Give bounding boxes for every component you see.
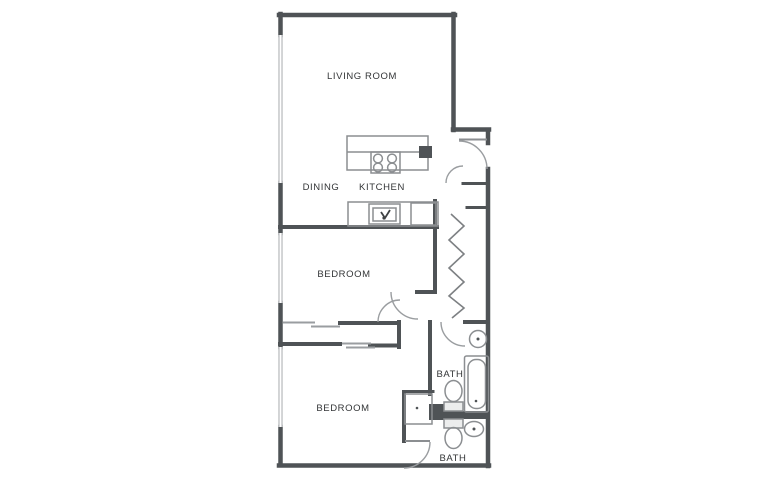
island-end-post xyxy=(419,146,432,158)
toilet-upper xyxy=(444,381,463,412)
bedroom-2-door xyxy=(378,300,400,322)
bifold-closet-doors xyxy=(449,214,464,318)
kitchen-sink xyxy=(369,204,400,224)
label-kitchen: KITCHEN xyxy=(359,182,405,193)
bath-sink-oval xyxy=(465,422,484,437)
refrigerator xyxy=(411,203,436,225)
entry-door xyxy=(459,140,487,170)
label-bath-2: BATH xyxy=(439,453,466,464)
label-living-room: LIVING ROOM xyxy=(327,71,397,82)
floorplan-drawing: LIVING ROOM DINING KITCHEN BEDROOM BEDRO… xyxy=(0,0,768,480)
bath-nook-door xyxy=(441,322,465,346)
label-dining: DINING xyxy=(303,182,340,193)
label-bedroom-1: BEDROOM xyxy=(317,269,370,280)
bedroom-1-door xyxy=(391,292,418,319)
bath-sink-round xyxy=(470,331,487,348)
label-bedroom-2: BEDROOM xyxy=(316,403,369,414)
vanity-cabinet xyxy=(405,394,432,424)
toilet-lower xyxy=(444,419,463,449)
bathtub xyxy=(465,356,489,412)
label-bath-1: BATH xyxy=(436,369,463,380)
floorplan-canvas: LIVING ROOM DINING KITCHEN BEDROOM BEDRO… xyxy=(0,0,768,480)
hall-closet-door xyxy=(446,166,463,183)
kitchen-counter xyxy=(348,202,438,226)
kitchen-island xyxy=(347,136,432,170)
